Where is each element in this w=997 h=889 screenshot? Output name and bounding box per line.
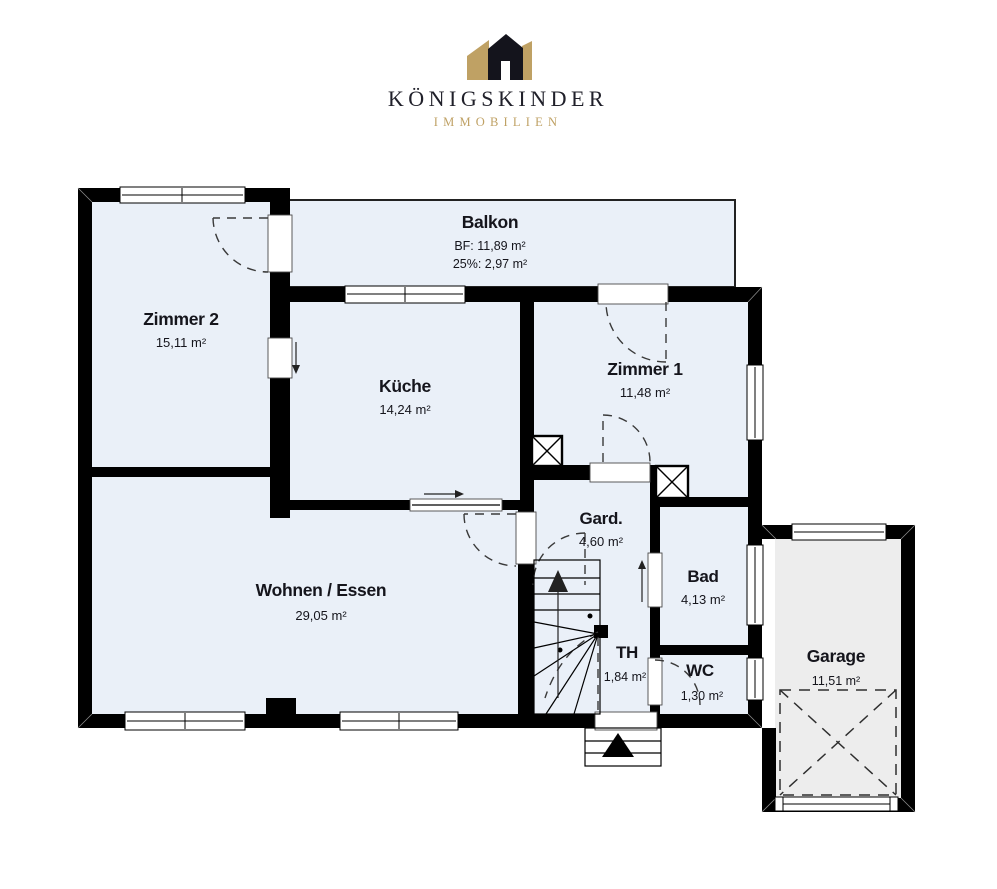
door-gap-bad <box>648 553 662 607</box>
svg-text:Balkon: Balkon <box>462 212 519 232</box>
svg-text:1,84 m²: 1,84 m² <box>604 670 646 684</box>
svg-text:1,30 m²: 1,30 m² <box>681 689 723 703</box>
window-bad-right <box>747 545 763 625</box>
floor-plan-page: KÖNIGSKINDER IMMOBILIEN <box>0 0 997 889</box>
door-gap-wohnen <box>516 512 536 564</box>
shaft-icon <box>656 466 688 498</box>
window-wc-right <box>747 658 763 700</box>
svg-text:4,60 m²: 4,60 m² <box>579 534 624 549</box>
svg-text:11,48 m²: 11,48 m² <box>620 385 671 400</box>
window-wohnen-bottom-left <box>125 712 245 730</box>
door-gap-zimmer1-balkon <box>598 284 668 304</box>
svg-text:14,24 m²: 14,24 m² <box>379 402 431 417</box>
window-zimmer1-right <box>747 365 763 440</box>
window-wohnen-bottom-right <box>340 712 458 730</box>
logo-crown-icon <box>467 34 532 80</box>
door-gap-wc <box>648 658 662 705</box>
svg-text:Gard.: Gard. <box>580 509 623 528</box>
entrance-steps <box>585 728 661 766</box>
brand-logo: KÖNIGSKINDER IMMOBILIEN <box>388 34 608 129</box>
sliding-door-kueche <box>410 499 502 511</box>
svg-text:WC: WC <box>686 661 714 680</box>
svg-text:15,11 m²: 15,11 m² <box>156 335 207 350</box>
svg-text:29,05 m²: 29,05 m² <box>295 608 347 623</box>
svg-text:Wohnen / Essen: Wohnen / Essen <box>256 580 387 600</box>
svg-text:BF: 11,89 m²: BF: 11,89 m² <box>454 239 525 253</box>
door-gap-zimmer2-balkon <box>268 215 292 272</box>
shaft-icon <box>532 436 562 466</box>
svg-text:Küche: Küche <box>379 376 432 396</box>
garage-door <box>775 797 898 811</box>
entrance-arrow-icon <box>602 733 634 757</box>
brand-title: KÖNIGSKINDER <box>388 86 608 111</box>
svg-text:Zimmer 2: Zimmer 2 <box>143 309 219 329</box>
svg-text:4,13 m²: 4,13 m² <box>681 592 726 607</box>
svg-text:Bad: Bad <box>687 567 718 586</box>
svg-text:11,51 m²: 11,51 m² <box>812 674 860 688</box>
svg-text:Garage: Garage <box>807 646 866 666</box>
door-gap-zimmer1 <box>590 463 650 482</box>
window-garage-top <box>792 524 886 540</box>
svg-text:25%: 2,97 m²: 25%: 2,97 m² <box>453 257 527 271</box>
brand-subtitle: IMMOBILIEN <box>434 115 562 129</box>
room-label-balkon: Balkon BF: 11,89 m² 25%: 2,97 m² <box>453 212 527 271</box>
window-kueche-top <box>345 286 465 303</box>
svg-text:Zimmer 1: Zimmer 1 <box>607 359 683 379</box>
passage-zimmer2-kueche <box>268 338 292 378</box>
floor-plan-svg: KÖNIGSKINDER IMMOBILIEN <box>0 0 997 889</box>
window-zimmer2-top <box>120 187 245 203</box>
room-garage <box>775 539 901 798</box>
svg-text:TH: TH <box>616 643 638 662</box>
entrance-door-gap <box>595 712 657 730</box>
